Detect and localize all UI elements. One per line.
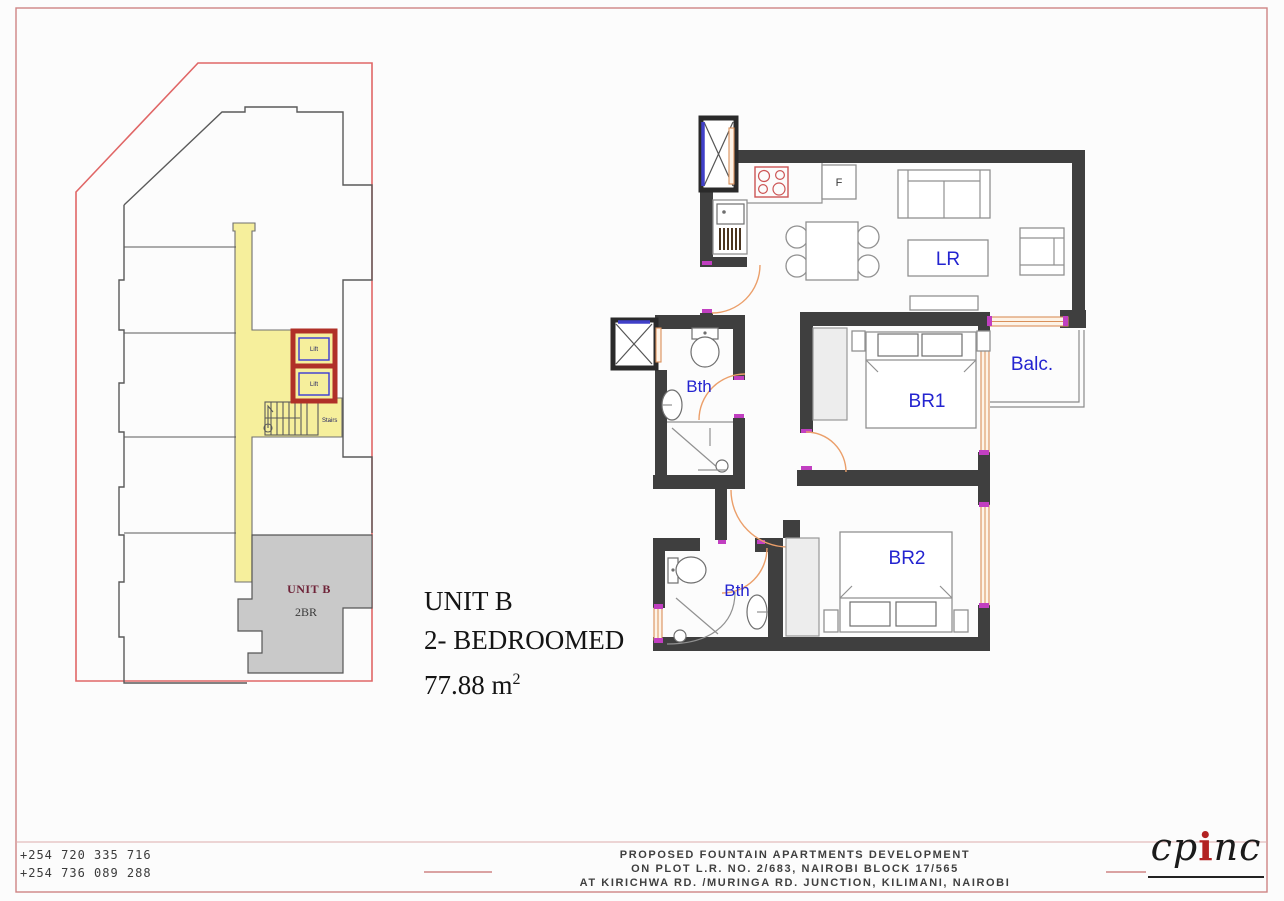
fridge-label: F — [836, 177, 843, 189]
logo-underline — [1148, 876, 1264, 878]
key-unit-sublabel: 2BR — [295, 605, 317, 619]
dining-set — [786, 222, 879, 280]
building-left-edge — [119, 205, 247, 683]
stairs-label: Stairs — [322, 418, 337, 424]
phone-2: +254 736 089 288 — [20, 864, 152, 882]
key-plan: Stairs Lift Lift UNIT B 2BR — [76, 63, 372, 683]
entry-door-arc — [712, 265, 760, 313]
armchair — [1020, 228, 1064, 275]
bedroom1-window — [981, 350, 989, 452]
shower1-icon — [672, 428, 728, 472]
bathroom2: Bth — [667, 557, 768, 644]
project-line2: ON PLOT L.R. NO. 2/683, NAIROBI BLOCK 17… — [455, 862, 1135, 876]
balcony-label: Balc. — [1011, 354, 1053, 375]
drawing-sheet: Stairs Lift Lift UNIT B 2BR — [0, 0, 1284, 901]
shaft-middle — [613, 320, 661, 368]
tv-cabinet — [910, 296, 978, 310]
living-room: LR — [898, 170, 1064, 310]
bedroom2-label: BR2 — [889, 548, 926, 569]
lift-2-label: Lift — [310, 382, 318, 388]
basin1-icon — [662, 390, 682, 420]
project-description: PROPOSED FOUNTAIN APARTMENTS DEVELOPMENT… — [455, 848, 1135, 890]
bedroom1: BR1 — [813, 328, 990, 428]
toilet1-icon — [691, 328, 719, 367]
wardrobe2 — [786, 538, 819, 636]
sink-unit — [713, 200, 747, 254]
bed2 — [824, 532, 968, 632]
project-line1: PROPOSED FOUNTAIN APARTMENTS DEVELOPMENT — [455, 848, 1135, 862]
unit-title-line2: 2- BEDROOMED — [424, 621, 624, 660]
bath2-label: Bth — [724, 581, 750, 600]
lift-block: Lift Lift — [293, 331, 335, 401]
key-unit-label: UNIT B — [287, 582, 331, 596]
shaft-top — [701, 118, 736, 190]
logo-i: i — [1198, 824, 1213, 869]
living-room-label: LR — [936, 249, 960, 270]
project-line3: AT KIRICHWA RD. /MURINGA RD. JUNCTION, K… — [455, 876, 1135, 890]
toilet2-icon — [668, 557, 706, 583]
sofa — [898, 170, 990, 218]
logo-nc: nc — [1214, 825, 1262, 869]
fridge: F — [822, 165, 856, 199]
balcony-door-window — [990, 317, 1068, 326]
basin2-icon — [747, 595, 768, 629]
unit-title-line1: UNIT B — [424, 582, 624, 621]
cooker-icon — [755, 167, 788, 197]
page-frame — [16, 8, 1267, 892]
unit-floor-plan: F — [613, 118, 1086, 651]
company-logo: cpinc — [1146, 824, 1266, 869]
logo-cp: cp — [1151, 825, 1199, 869]
plan-drawing: Stairs Lift Lift UNIT B 2BR — [0, 0, 1284, 901]
bed1 — [852, 331, 990, 428]
bath1-label: Bth — [686, 377, 712, 396]
bedroom2: BR2 — [786, 532, 968, 636]
floor-lines — [124, 247, 236, 533]
bathroom1: Bth — [662, 328, 733, 472]
wardrobe1 — [813, 328, 847, 420]
phone-1: +254 720 335 716 — [20, 846, 152, 864]
contact-phones: +254 720 335 716 +254 736 089 288 — [20, 846, 152, 882]
area-superscript: 2 — [513, 671, 521, 688]
unit-b-highlight: UNIT B 2BR — [238, 535, 372, 673]
unit-title-area: 77.88 m2 — [424, 660, 624, 705]
bath2-window — [654, 608, 662, 640]
bedroom2-window — [981, 505, 989, 605]
unit-title: UNIT B 2- BEDROOMED 77.88 m2 — [424, 582, 624, 705]
bedroom1-label: BR1 — [909, 391, 946, 412]
lift-1-label: Lift — [310, 347, 318, 353]
area-value: 77.88 m — [424, 670, 513, 700]
